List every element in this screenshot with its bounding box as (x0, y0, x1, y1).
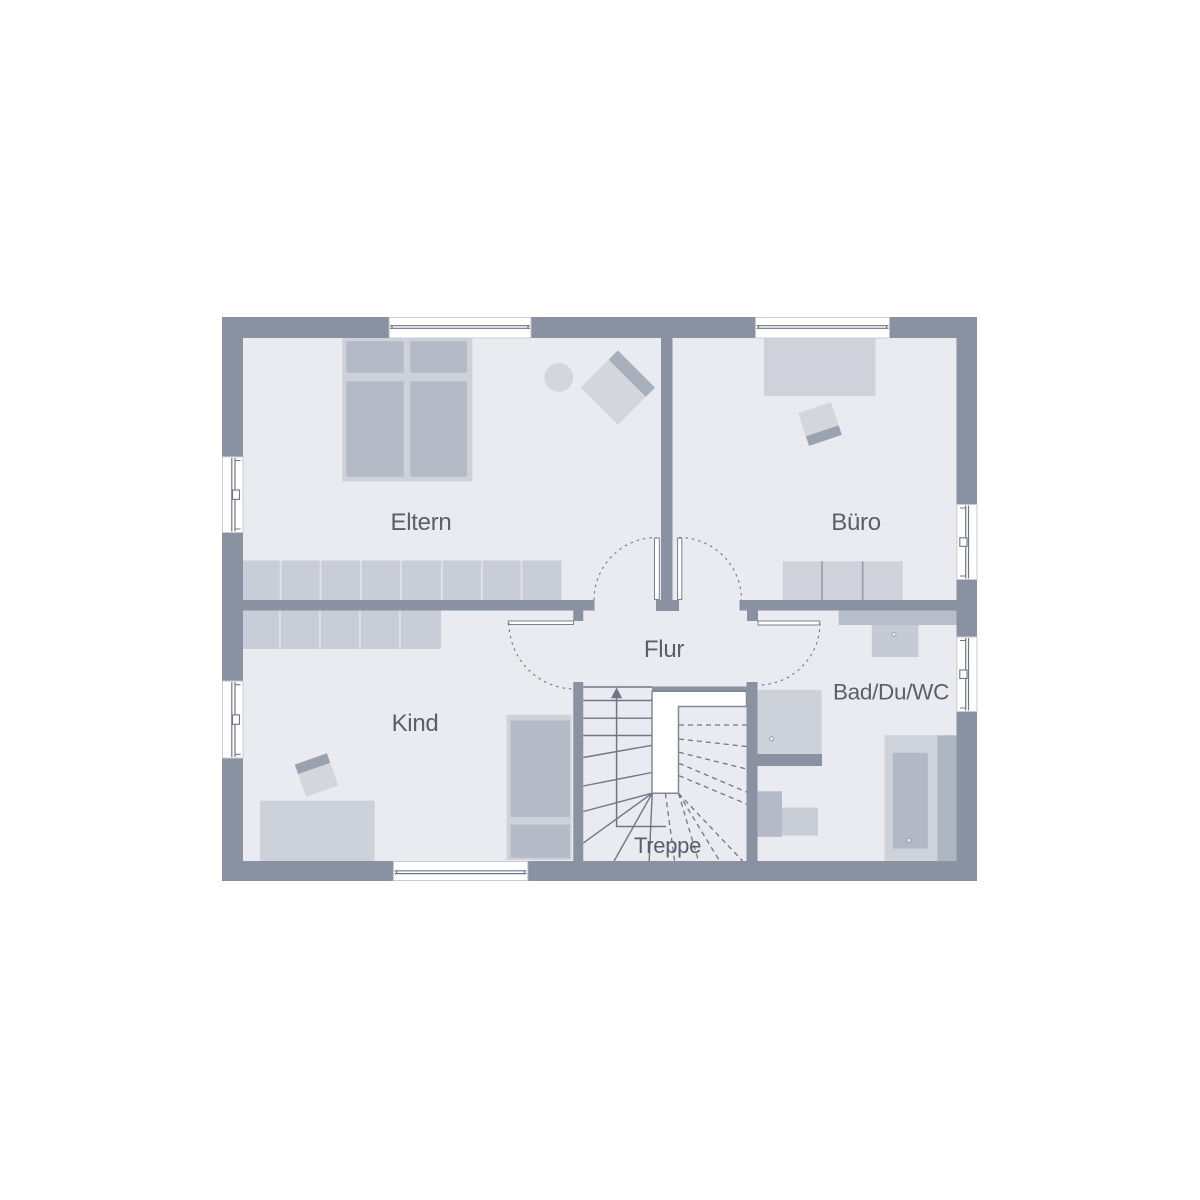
svg-text:Treppe: Treppe (634, 833, 701, 858)
svg-text:Büro: Büro (831, 509, 881, 536)
svg-text:Flur: Flur (644, 636, 684, 663)
svg-text:Bad/Du/WC: Bad/Du/WC (833, 680, 949, 705)
svg-text:Kind: Kind (392, 710, 439, 737)
svg-text:Eltern: Eltern (391, 509, 452, 536)
